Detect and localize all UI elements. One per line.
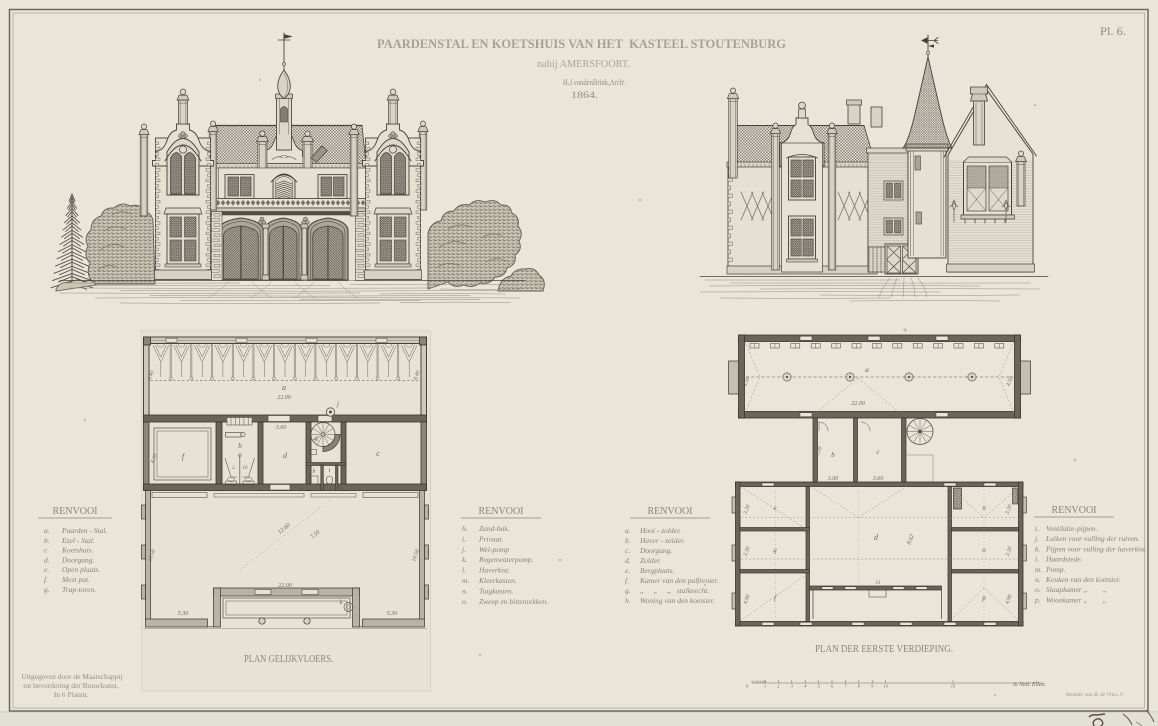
- svg-text:b: b: [238, 441, 242, 450]
- svg-text:k: k: [340, 599, 343, 606]
- svg-text:3.60: 3.60: [872, 476, 884, 482]
- svg-text:RENVOOI: RENVOOI: [1052, 505, 1097, 516]
- svg-text:Zweep en bittenrekken.: Zweep en bittenrekken.: [479, 597, 548, 606]
- svg-text:Kamer van den palfrenier.: Kamer van den palfrenier.: [639, 576, 719, 585]
- svg-text:Koetshuis.: Koetshuis.: [61, 546, 94, 555]
- svg-text:11: 11: [875, 580, 880, 586]
- svg-text:k.: k.: [462, 555, 467, 564]
- svg-text:Slaapkamer „ „: Slaapkamer „ „: [1046, 585, 1107, 594]
- svg-text:Doorgang.: Doorgang.: [61, 555, 95, 564]
- svg-text:p.: p.: [1034, 595, 1041, 604]
- svg-text:l.: l.: [462, 566, 466, 575]
- svg-text:Haverkist.: Haverkist.: [478, 566, 510, 575]
- svg-text:i: i: [329, 467, 331, 474]
- svg-text:10: 10: [883, 684, 888, 689]
- svg-text:H.J.vandenBrink,Archᵗ.: H.J.vandenBrink,Archᵗ.: [563, 77, 626, 87]
- svg-text:Kleerkasten.: Kleerkasten.: [478, 576, 517, 585]
- svg-text:Ventilatie-pijpen.: Ventilatie-pijpen.: [1046, 524, 1098, 533]
- svg-text:10: 10: [243, 466, 249, 471]
- svg-text:k.: k.: [1035, 544, 1040, 553]
- svg-text:PAARDENSTAL EN KOETSHUIS VAN H: PAARDENSTAL EN KOETSHUIS VAN HET KASTEEL…: [377, 36, 786, 51]
- svg-text:Trap-toren.: Trap-toren.: [62, 585, 96, 594]
- svg-text:p: p: [981, 594, 986, 602]
- svg-text:in Ned. Ellen.: in Ned. Ellen.: [1013, 682, 1046, 688]
- svg-text:o.: o.: [1035, 585, 1041, 594]
- svg-text:2.: 2.: [232, 466, 236, 471]
- svg-text:Haver - zolder.: Haver - zolder.: [639, 536, 685, 545]
- svg-text:Haardstede.: Haardstede.: [1045, 555, 1083, 564]
- svg-text:Wel-pomp: Wel-pomp: [479, 545, 509, 554]
- svg-text:n.: n.: [1035, 575, 1041, 584]
- svg-text:i.: i.: [1035, 524, 1039, 533]
- svg-text:Keuken van den koetsier.: Keuken van den koetsier.: [1045, 575, 1121, 584]
- svg-text:n.: n.: [462, 586, 468, 595]
- svg-text:j.: j.: [1034, 534, 1039, 543]
- svg-text:Steendr. van B. de Vries Jʳ.: Steendr. van B. de Vries Jʳ.: [1066, 692, 1125, 698]
- svg-text:Pl. 6.: Pl. 6.: [1100, 26, 1126, 38]
- svg-text:i.: i.: [462, 534, 466, 543]
- svg-text:a.: a.: [44, 526, 50, 535]
- svg-text:a: a: [282, 383, 286, 392]
- svg-text:Mest put.: Mest put.: [61, 575, 90, 584]
- svg-text:c.: c.: [44, 546, 49, 555]
- svg-text:Bergplaats.: Bergplaats.: [640, 566, 675, 575]
- svg-text:Doorgang.: Doorgang.: [639, 546, 673, 555]
- svg-text:Woonkamer „ „: Woonkamer „ „: [1046, 595, 1107, 604]
- svg-text:PLAN DER EERSTE VERDIEPING.: PLAN DER EERSTE VERDIEPING.: [815, 644, 953, 655]
- svg-text:e.: e.: [44, 565, 49, 574]
- svg-text:In 6 Platen.: In 6 Platen.: [54, 690, 88, 699]
- svg-text:a: a: [865, 365, 869, 374]
- svg-text:tot bevordering der Bouwkunst,: tot bevordering der Bouwkunst,: [23, 681, 119, 690]
- svg-text:Paarden - Stal.: Paarden - Stal.: [61, 526, 107, 535]
- svg-text:5.30: 5.30: [178, 611, 189, 617]
- svg-text:1864.: 1864.: [571, 90, 598, 100]
- svg-text:Luiken voor vulling der ruiven: Luiken voor vulling der ruiven.: [1045, 534, 1140, 543]
- svg-text:Zolder.: Zolder.: [640, 556, 661, 565]
- svg-text:Zand-bak.: Zand-bak.: [479, 524, 510, 533]
- svg-text:j.: j.: [461, 545, 466, 554]
- svg-text:Regenwaterpomp.: Regenwaterpomp.: [478, 555, 533, 564]
- svg-text:Pomp.: Pomp.: [1045, 565, 1065, 574]
- svg-text:RENVOOI: RENVOOI: [648, 506, 693, 517]
- svg-text:Ezel - Stal.: Ezel - Stal.: [61, 536, 95, 545]
- svg-text:m.: m.: [1035, 565, 1042, 574]
- svg-text:f.: f.: [625, 576, 629, 585]
- svg-text:Uitgegeven door de Maatschappi: Uitgegeven door de Maatschappij: [21, 672, 122, 681]
- svg-text:e: e: [773, 504, 776, 512]
- svg-text:Woning van den koetsier.: Woning van den koetsier.: [640, 596, 715, 605]
- svg-text:5.30: 5.30: [387, 611, 398, 617]
- svg-text:g: g: [314, 433, 318, 442]
- svg-text:Tuigkasten.: Tuigkasten.: [479, 586, 514, 595]
- svg-text:Hooi - zolder.: Hooi - zolder.: [639, 526, 681, 535]
- svg-text:g.: g.: [44, 585, 50, 594]
- svg-text:15: 15: [951, 684, 956, 689]
- svg-text:22.00: 22.00: [851, 401, 865, 407]
- svg-text:d.: d.: [44, 555, 50, 564]
- svg-text:l.: l.: [1035, 555, 1039, 564]
- svg-text:22.00: 22.00: [277, 395, 291, 401]
- svg-text:b.: b.: [625, 536, 631, 545]
- svg-text:3.00: 3.00: [827, 476, 839, 482]
- svg-text:1: 1: [764, 684, 766, 689]
- svg-text:RENVOOI: RENVOOI: [53, 506, 98, 517]
- svg-text:Privaat.: Privaat.: [478, 534, 503, 543]
- svg-text:h.: h.: [462, 524, 468, 533]
- svg-text:b.: b.: [44, 536, 50, 545]
- svg-text:3.60: 3.60: [275, 425, 287, 431]
- svg-text:c.: c.: [625, 546, 630, 555]
- svg-text:h.: h.: [625, 596, 631, 605]
- svg-text:c: c: [376, 449, 380, 458]
- svg-text:h: h: [312, 468, 315, 475]
- svg-text:f.: f.: [44, 575, 48, 584]
- svg-text:RENVOOI: RENVOOI: [479, 506, 524, 517]
- svg-text:o.: o.: [462, 597, 468, 606]
- svg-text:„ „ „ stalknecht.: „ „ „ stalknecht.: [640, 586, 709, 595]
- svg-text:g.: g.: [625, 586, 631, 595]
- svg-text:nabij AMERSFOORT.: nabij AMERSFOORT.: [537, 59, 630, 70]
- svg-text:j: j: [336, 400, 339, 408]
- svg-text:b: b: [831, 450, 835, 459]
- svg-text:o: o: [982, 546, 986, 554]
- svg-text:m.: m.: [462, 576, 469, 585]
- svg-text:e.: e.: [625, 566, 630, 575]
- svg-text:Pijpen voor vulling der haverk: Pijpen voor vulling der haverkist.: [1045, 544, 1147, 553]
- svg-text:Open plaats.: Open plaats.: [62, 565, 100, 574]
- svg-text:n: n: [982, 504, 986, 512]
- svg-text:g: g: [773, 546, 777, 554]
- svg-text:a.: a.: [625, 526, 631, 535]
- svg-text:d.: d.: [625, 556, 631, 565]
- svg-text:PLAN GELIJKVLOERS.: PLAN GELIJKVLOERS.: [244, 654, 333, 665]
